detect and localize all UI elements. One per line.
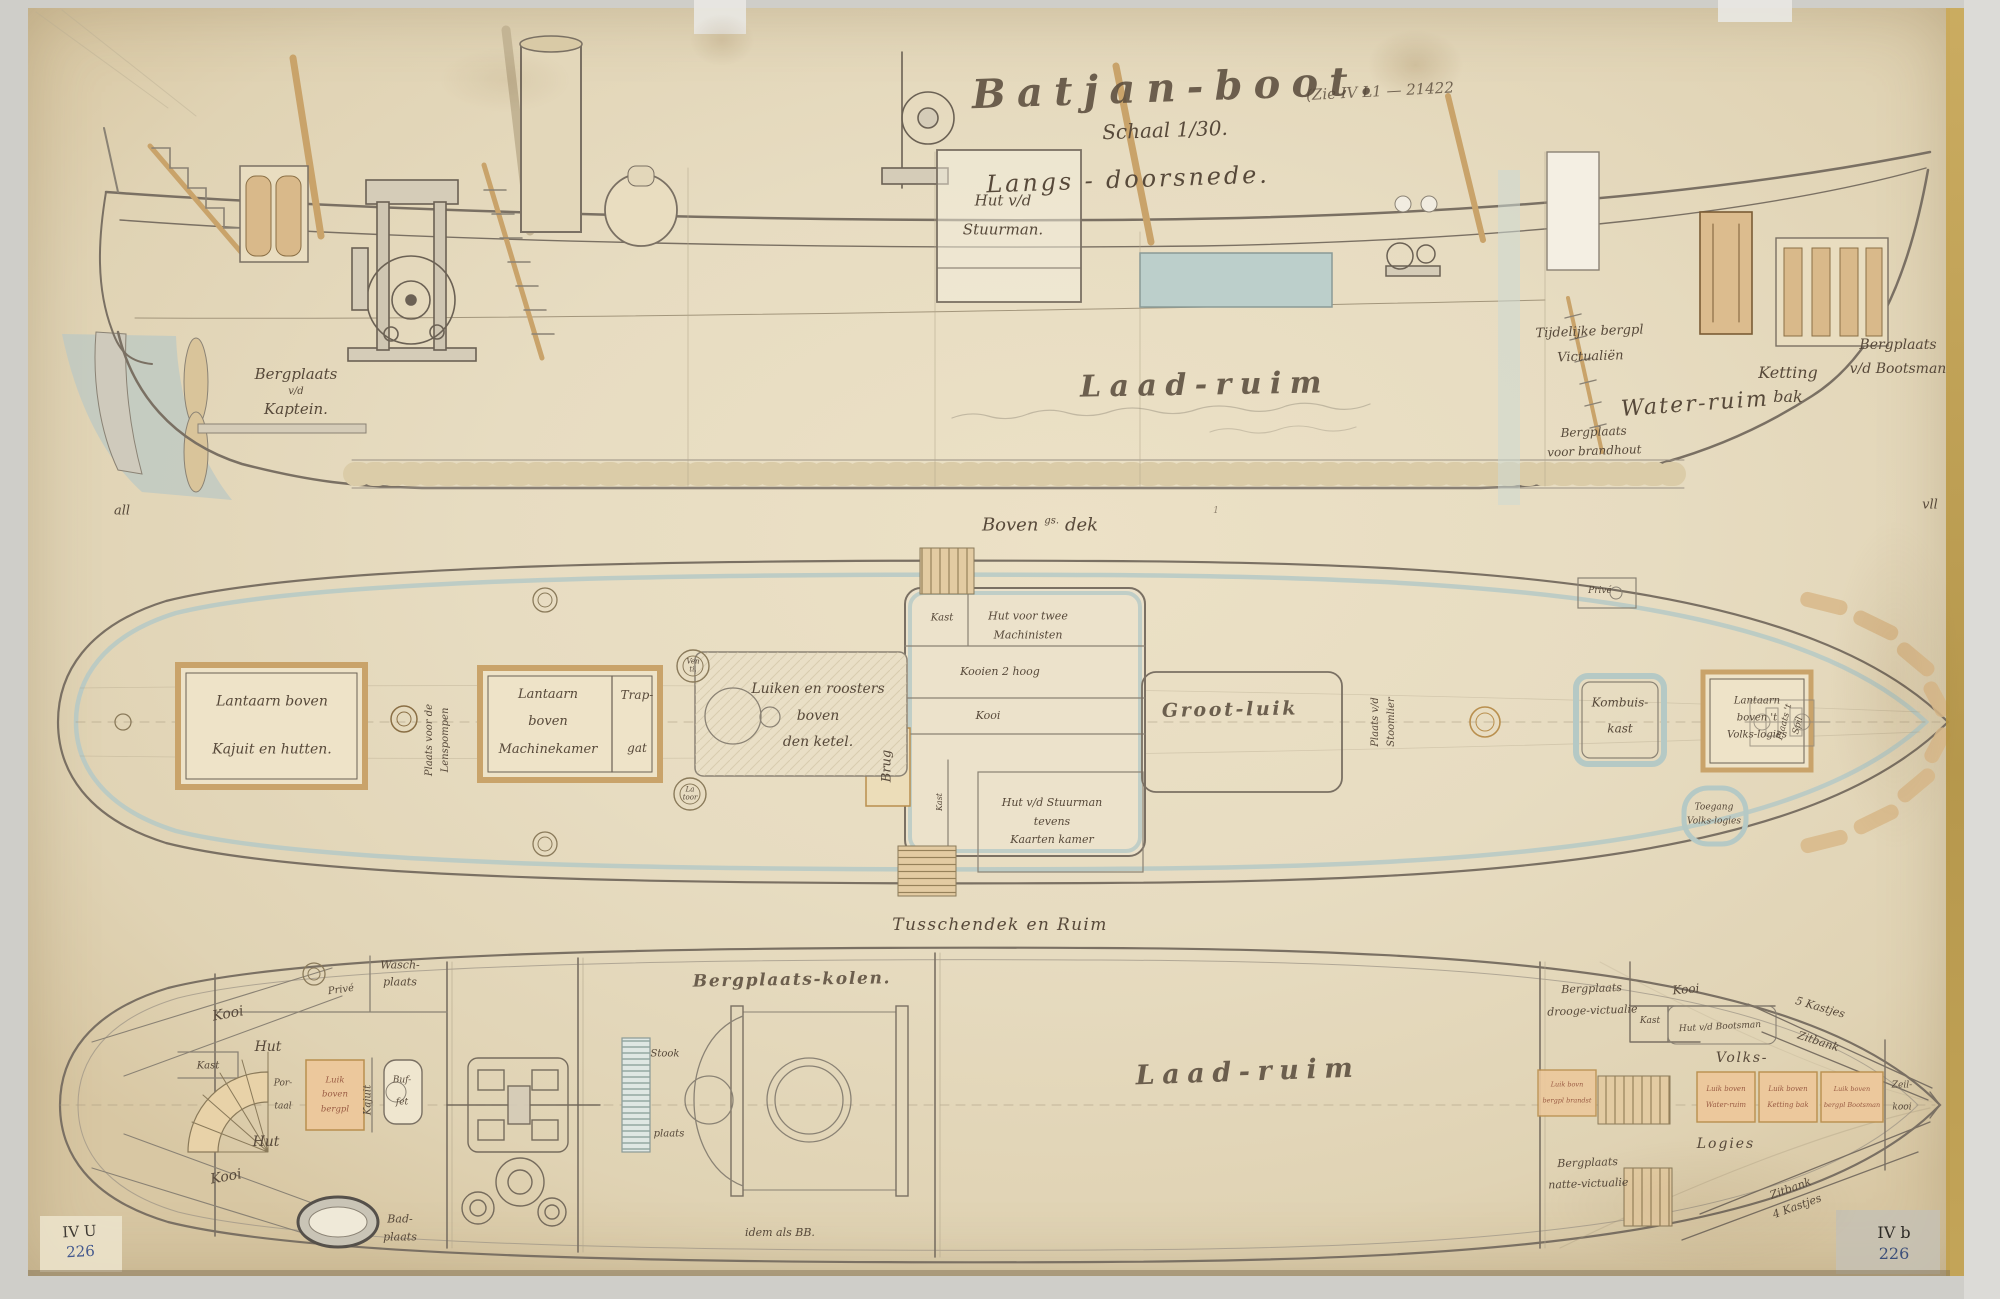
- label-line: Ketting bak: [1767, 1097, 1808, 1113]
- pencil-note: [952, 403, 1370, 418]
- label-line: tevens: [1002, 813, 1103, 832]
- label-line: Luik bovn: [1542, 1077, 1591, 1093]
- label-line: Bergplaats: [1546, 976, 1637, 1001]
- propeller-shaft: [198, 424, 366, 433]
- label-stook-plaats: plaats: [654, 1128, 685, 1141]
- label-buffet: Buf- fet: [393, 1070, 411, 1113]
- archive-stamp-left: IV U 226: [62, 1222, 98, 1263]
- crease: [36, 10, 196, 116]
- label-kajuit: Kajuit: [362, 1085, 375, 1115]
- steam-windlass-machine: [1386, 243, 1440, 276]
- label-line: Por-: [274, 1073, 292, 1096]
- label-kombuis-kast: Kombuis- kast: [1592, 690, 1649, 743]
- label-line: plaats: [383, 1228, 417, 1246]
- label-line: La: [683, 786, 698, 794]
- label-line: Trap-: [621, 669, 654, 722]
- label-line: Luik boven: [1767, 1081, 1808, 1097]
- label-brug: Brug: [880, 750, 897, 782]
- tween-deck-line: [135, 300, 1545, 318]
- label-luiken-roosters: Luiken en roosters boven den ketel.: [751, 676, 884, 756]
- cabin-door: [246, 176, 271, 256]
- label-line: Bad-: [383, 1210, 417, 1228]
- label-line: Plaats voor de: [422, 704, 438, 776]
- label-line: Bergplaats: [1547, 1152, 1628, 1176]
- label-line: Machinisten: [988, 626, 1068, 645]
- label-line: boven: [751, 703, 884, 730]
- label-line: Kajuit en hutten.: [212, 726, 332, 774]
- porthole: [1395, 196, 1411, 212]
- caption-upper-deck: Bovengs.dek: [979, 513, 1101, 536]
- label-line: Toegang: [1687, 802, 1741, 816]
- label-luik-bootsman: Luik boven bergpl Bootsman: [1824, 1081, 1880, 1114]
- scanned-ship-drawing: Batjan-boot. (Zie IV L1 — 21422 Schaal 1…: [0, 0, 2000, 1299]
- label-line: Kaptein.: [255, 399, 338, 420]
- label-lantaarn-machinekamer: Lantaarn boven Machinekamer: [499, 681, 598, 763]
- aft-cabin-door: [1700, 212, 1752, 334]
- label-line: Hut voor twee: [988, 607, 1068, 626]
- label-tijdelijke-bergplaats: Tijdelijke bergpl Victualiën: [1535, 318, 1645, 371]
- label-luik-bergplaats: Luik boven bergpl: [321, 1073, 349, 1116]
- label-line: taal: [274, 1096, 292, 1119]
- label-line: boven: [321, 1088, 349, 1102]
- label-line: Stoomlier: [1384, 697, 1400, 747]
- label-portaal: Por- taal: [274, 1073, 292, 1120]
- label-hut-stuurman-kaartenkamer: Hut v/d Stuurman tevens Kaarten kamer: [1002, 794, 1103, 850]
- tall-locker: [1547, 152, 1599, 270]
- label-line: Lantaarn: [499, 681, 598, 708]
- label-line: Buf-: [393, 1070, 411, 1092]
- label-line: Ven: [686, 658, 699, 666]
- label-line: Luik boven: [1706, 1081, 1746, 1097]
- label-line: Bergplaats: [1850, 334, 1947, 358]
- label-zeil-kooi: Zeil- kooi: [1892, 1075, 1912, 1118]
- label-line: Kaarten kamer: [1002, 831, 1103, 850]
- mark-right: vll: [1922, 498, 1938, 515]
- label-hut-stuurman: Hut v/d Stuurman.: [963, 187, 1043, 244]
- label-line: Water-ruim: [1706, 1097, 1746, 1113]
- bulkheads: [688, 152, 1545, 486]
- label-ketting-bak: Ketting bak: [1758, 361, 1818, 409]
- label-bergplaats-kaptein: Bergplaats v/d Kaptein.: [255, 364, 338, 420]
- label-line: dek: [1065, 514, 1098, 535]
- label-waschplaats: Wasch- plaats: [380, 958, 420, 991]
- label-kast: Kast: [931, 612, 954, 625]
- cowl-vent: [533, 832, 557, 856]
- engine-plan: [447, 1058, 600, 1226]
- funnel: [521, 44, 581, 232]
- label-line: bergpl Bootsman: [1824, 1097, 1880, 1113]
- label-line: Luik: [321, 1073, 349, 1087]
- label-idem-als-bb: idem als BB.: [745, 1226, 815, 1240]
- label-line: gat: [621, 722, 654, 775]
- label-line: Luik boven: [1824, 1081, 1880, 1097]
- label-hut-machinisten: Hut voor twee Machinisten: [988, 607, 1068, 644]
- label-bergplaats-brandhout: Bergplaats voor brandhout: [1546, 421, 1642, 463]
- label-ventilator: Ven ti.: [686, 658, 699, 675]
- label-line: bak: [1758, 385, 1818, 409]
- label-kast-left: Kast: [197, 1060, 220, 1073]
- label-hut-bottom: Hut: [253, 1133, 280, 1151]
- label-laad-ruim: Laad-ruim: [1080, 363, 1330, 406]
- label-line: drooge-victualie: [1547, 998, 1638, 1023]
- label-line: Wasch-: [380, 958, 420, 975]
- aft-stair-stringer: [150, 146, 246, 258]
- label-line: Plaats v/d: [1368, 697, 1384, 747]
- label-logies: Logies: [1697, 1135, 1755, 1153]
- label-stook: Stook: [651, 1048, 680, 1061]
- label-line: Luiken en roosters: [751, 676, 884, 703]
- label-line: Zeil-: [1892, 1075, 1912, 1097]
- boiler-dome: [628, 166, 654, 186]
- pump-circle: [391, 706, 417, 732]
- label-line: Bergplaats: [255, 364, 338, 385]
- cowl-vent: [533, 588, 557, 612]
- label-line: Hut v/d Stuurman: [1002, 794, 1103, 813]
- porthole: [1421, 196, 1437, 212]
- label-line: Lantaarn: [1727, 693, 1787, 710]
- mark-left: all: [114, 504, 130, 521]
- label-luik-waterruim: Luik boven Water-ruim: [1706, 1081, 1746, 1113]
- label-line: gs.: [1044, 515, 1059, 526]
- label-line: natte-victualie: [1548, 1173, 1629, 1197]
- label-toegang-volkslogies: Toegang Volks-logies: [1687, 802, 1741, 829]
- label-volks: Volks-: [1716, 1049, 1768, 1067]
- label-kast-right: Kast: [1640, 1016, 1660, 1028]
- label-line: Hut v/d: [963, 187, 1043, 216]
- label-hut-top: Hut: [255, 1038, 282, 1056]
- label-line: v/d: [255, 385, 338, 399]
- label-lantaarn-kajuit: Lantaarn boven Kajuit en hutten.: [212, 678, 332, 773]
- stamp-line: 226: [63, 1241, 98, 1262]
- station-mark: 1: [1213, 506, 1219, 518]
- label-line: boven: [499, 708, 598, 735]
- label-line: fet: [393, 1092, 411, 1114]
- label-bergplaats-bootsman: Bergplaats v/d Bootsman: [1850, 334, 1947, 382]
- stamp-line: 226: [1877, 1244, 1910, 1265]
- label-bergplaats-kolen: Bergplaats-kolen.: [693, 967, 892, 993]
- label-lenspompen: Plaats voor de Lenspompen: [422, 704, 454, 776]
- label-kooi-right: Kooi: [1672, 981, 1700, 999]
- label-line: bergpl: [321, 1102, 349, 1116]
- label-line: Kombuis-: [1592, 690, 1649, 716]
- label-line: Lenspompen: [438, 704, 454, 776]
- label-line: plaats: [380, 974, 420, 991]
- cabin-door: [276, 176, 301, 256]
- mast-fore: [1448, 96, 1483, 240]
- label-stoomlier: Plaats v/d Stoomlier: [1368, 697, 1400, 747]
- label-bergplaats-natte: Bergplaats natte-victualie: [1547, 1152, 1629, 1197]
- label-line: toor: [683, 794, 698, 802]
- drawing-scale: Schaal 1/30.: [1102, 115, 1228, 145]
- binding-edge: [1946, 8, 1964, 1276]
- label-kast-vertical: Kast: [935, 793, 945, 811]
- blue-partition: [1498, 170, 1520, 505]
- label-line: Ketting: [1758, 361, 1818, 385]
- label-bergplaats-droge: Bergplaats drooge-victualie: [1546, 976, 1638, 1023]
- pencil-note: [1210, 426, 1356, 433]
- label-line: den ketel.: [751, 729, 884, 756]
- stamp-line: IV b: [1877, 1223, 1910, 1244]
- label-line: Boven: [982, 514, 1038, 535]
- label-line: Victualiën: [1536, 343, 1645, 371]
- label-line: Lantaarn boven: [212, 678, 332, 726]
- label-luik-kettingbak: Luik boven Ketting bak: [1767, 1081, 1808, 1113]
- label-badplaats: Bad- plaats: [383, 1210, 417, 1245]
- flagstaff: [104, 128, 118, 192]
- scan-backdrop: [1964, 0, 2000, 1299]
- label-kooien: Kooien 2 hoog: [960, 665, 1040, 679]
- stamp-line: IV U: [62, 1222, 97, 1243]
- label-trapgat: Trap- gat: [621, 669, 654, 775]
- label-line: kast: [1592, 716, 1649, 742]
- label-prive-deck: Privé: [1588, 586, 1612, 598]
- label-line: ti.: [686, 666, 699, 674]
- label-line: kooi: [1892, 1097, 1912, 1119]
- skylight-blue: [1140, 253, 1332, 307]
- label-line: voor brandhout: [1547, 440, 1642, 462]
- label-kooi: Kooi: [976, 709, 1001, 723]
- label-line: Tijdelijke bergpl: [1535, 318, 1644, 346]
- archive-stamp-right: IV b 226: [1877, 1223, 1910, 1265]
- label-line: Volks-logies: [1687, 815, 1741, 829]
- label-line: Stuurman.: [963, 215, 1043, 244]
- caption-hold-plan: Tusschendek en Ruim: [892, 914, 1107, 936]
- label-line: bergpl brandst: [1542, 1093, 1591, 1109]
- label-luik-brandstof: Luik bovn bergpl brandst: [1542, 1077, 1591, 1108]
- label-lantoor: La toor: [683, 786, 698, 803]
- label-line: Machinekamer: [499, 736, 598, 763]
- main-hatch: [1142, 672, 1342, 792]
- paper-bottom-edge: [28, 1270, 1950, 1276]
- label-groot-luik: Groot-luik: [1162, 696, 1299, 723]
- label-line: v/d Bootsman: [1850, 358, 1947, 382]
- funnel-cap: [520, 36, 582, 52]
- boiler-plan: [685, 1006, 908, 1196]
